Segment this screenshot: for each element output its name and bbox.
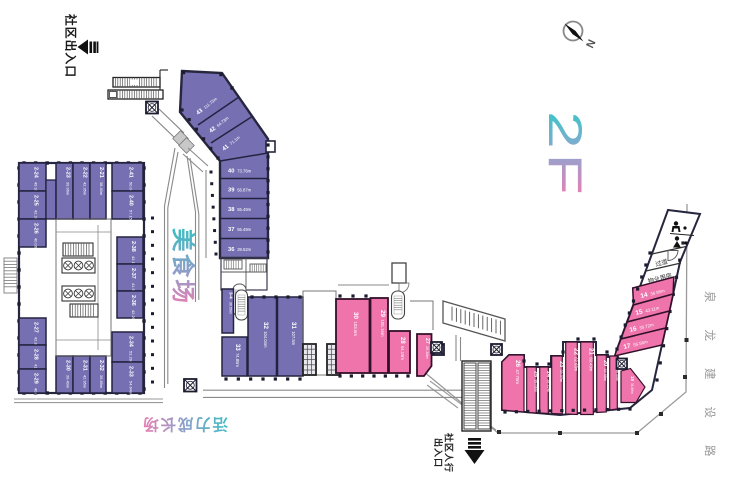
svg-text:活力成长场: 活力成长场 — [141, 415, 228, 434]
svg-text:44.08m: 44.08m — [603, 368, 607, 381]
svg-text:31.68m: 31.68m — [630, 383, 634, 394]
svg-text:2-36: 2-36 — [130, 295, 136, 306]
svg-text:62.68m: 62.68m — [573, 357, 578, 371]
svg-text:42.20m: 42.20m — [131, 310, 136, 324]
svg-text:2-32: 2-32 — [98, 360, 104, 371]
svg-text:39.52m: 39.52m — [237, 247, 251, 252]
svg-text:2-37: 2-37 — [130, 268, 136, 279]
svg-text:24: 24 — [545, 371, 551, 377]
svg-text:20: 20 — [602, 360, 608, 366]
svg-text:社区人行: 社区人行 — [444, 432, 455, 473]
svg-text:2-25: 2-25 — [33, 195, 39, 206]
svg-text:29.36m: 29.36m — [425, 346, 429, 359]
svg-text:30: 30 — [352, 312, 359, 320]
svg-text:74.85m: 74.85m — [235, 353, 240, 367]
svg-text:38.40m: 38.40m — [99, 182, 104, 196]
svg-text:2-34: 2-34 — [128, 336, 134, 347]
svg-text:40.06m: 40.06m — [34, 238, 39, 252]
svg-text:39.40m: 39.40m — [66, 375, 71, 389]
svg-text:36.56m: 36.56m — [229, 302, 233, 314]
svg-text:59.43m: 59.43m — [589, 357, 594, 371]
svg-text:28.42m: 28.42m — [546, 379, 550, 392]
svg-text:33: 33 — [234, 344, 240, 351]
svg-text:2-33: 2-33 — [128, 366, 134, 377]
svg-text:2-22: 2-22 — [82, 167, 88, 178]
svg-text:21: 21 — [588, 348, 595, 355]
svg-text:31: 31 — [290, 322, 297, 329]
svg-text:107.5m: 107.5m — [291, 331, 296, 345]
svg-text:39.85m: 39.85m — [99, 375, 104, 389]
svg-text:39.96m: 39.96m — [66, 182, 71, 196]
svg-text:55.49m: 55.49m — [237, 207, 251, 212]
svg-text:2-31: 2-31 — [82, 360, 88, 371]
svg-text:3-4: 3-4 — [229, 292, 234, 299]
svg-text:39.06m: 39.06m — [534, 379, 538, 392]
svg-text:32: 32 — [262, 322, 269, 329]
svg-text:26: 26 — [514, 360, 521, 368]
svg-text:社区出入口: 社区出入口 — [64, 13, 78, 78]
svg-text:2-28: 2-28 — [33, 349, 39, 360]
svg-text:40: 40 — [228, 169, 234, 175]
svg-text:39: 39 — [228, 188, 235, 194]
svg-text:2-41: 2-41 — [128, 167, 134, 178]
svg-text:2-24: 2-24 — [33, 167, 39, 178]
svg-text:38: 38 — [228, 207, 235, 213]
svg-text:23: 23 — [558, 361, 564, 367]
svg-text:美食场: 美食场 — [170, 228, 197, 305]
svg-text:54.64m: 54.64m — [129, 381, 134, 395]
svg-text:64.19m: 64.19m — [400, 346, 405, 360]
svg-text:73.76m: 73.76m — [237, 169, 251, 174]
svg-text:泉龙建设路: 泉龙建设路 — [703, 291, 717, 484]
svg-text:2-40: 2-40 — [128, 195, 134, 206]
svg-text:18: 18 — [630, 376, 635, 381]
svg-text:55.49m: 55.49m — [237, 227, 251, 232]
svg-text:42.35m: 42.35m — [83, 182, 88, 196]
svg-text:2-30: 2-30 — [65, 360, 71, 371]
svg-text:2-26: 2-26 — [33, 223, 39, 234]
svg-text:40.08m: 40.08m — [34, 388, 39, 402]
svg-text:2-29: 2-29 — [33, 373, 39, 384]
svg-text:33.37m: 33.37m — [559, 369, 563, 382]
svg-text:28: 28 — [399, 337, 405, 344]
svg-text:2-27: 2-27 — [33, 322, 39, 333]
svg-text:36: 36 — [228, 247, 235, 253]
svg-text:57.15m: 57.15m — [129, 210, 134, 224]
svg-text:42.95m: 42.95m — [83, 375, 88, 389]
svg-text:2F: 2F — [539, 111, 591, 199]
svg-text:25: 25 — [533, 371, 539, 377]
svg-text:22: 22 — [572, 348, 579, 355]
svg-text:出入口: 出入口 — [433, 438, 444, 468]
svg-text:103.6m: 103.6m — [353, 321, 358, 336]
svg-text:37: 37 — [228, 227, 234, 233]
svg-text:2-38: 2-38 — [130, 241, 136, 252]
svg-text:2-23: 2-23 — [65, 167, 71, 178]
svg-text:104.04m: 104.04m — [263, 331, 268, 348]
svg-text:47.76m: 47.76m — [515, 369, 520, 384]
svg-text:29: 29 — [379, 310, 386, 318]
svg-text:105.16m: 105.16m — [380, 319, 385, 336]
svg-text:27: 27 — [424, 338, 430, 344]
svg-text:39.55m: 39.55m — [615, 369, 619, 381]
svg-text:2-21: 2-21 — [98, 167, 104, 178]
svg-text:56.87m: 56.87m — [237, 188, 251, 193]
